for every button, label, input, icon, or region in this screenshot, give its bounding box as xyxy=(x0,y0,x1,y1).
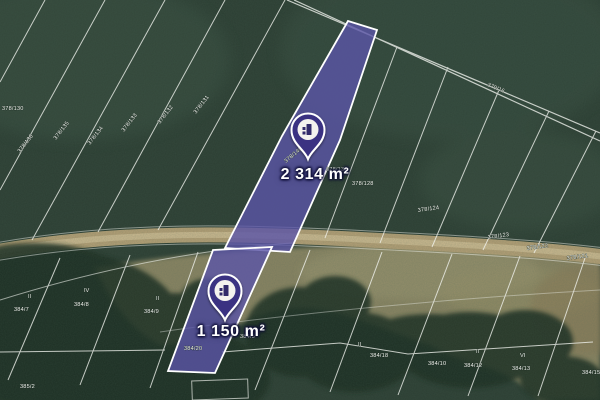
svg-text:378/128: 378/128 xyxy=(352,181,374,187)
svg-text:II: II xyxy=(476,349,480,355)
svg-text:384/18: 384/18 xyxy=(370,353,388,359)
svg-text:378/138: 378/138 xyxy=(326,167,348,173)
svg-text:384/9: 384/9 xyxy=(144,309,159,315)
svg-text:II: II xyxy=(358,342,362,348)
svg-text:378/130: 378/130 xyxy=(2,106,24,112)
svg-text:384/15: 384/15 xyxy=(582,370,600,376)
svg-text:II: II xyxy=(156,296,160,302)
svg-text:384/8: 384/8 xyxy=(74,302,89,308)
svg-text:384/13: 384/13 xyxy=(512,366,530,372)
svg-text:IV: IV xyxy=(84,288,90,294)
svg-text:384/20: 384/20 xyxy=(184,346,202,352)
map-canvas[interactable]: 378/130 378/136 378/135 378/134 378/133 … xyxy=(0,0,600,400)
svg-text:384/7: 384/7 xyxy=(14,307,29,313)
svg-text:384/10: 384/10 xyxy=(428,361,446,367)
svg-text:VI: VI xyxy=(520,353,526,359)
svg-text:385/2: 385/2 xyxy=(20,384,35,390)
svg-text:384/12: 384/12 xyxy=(464,363,482,369)
svg-text:384/5: 384/5 xyxy=(240,334,255,340)
svg-text:II: II xyxy=(28,294,32,300)
